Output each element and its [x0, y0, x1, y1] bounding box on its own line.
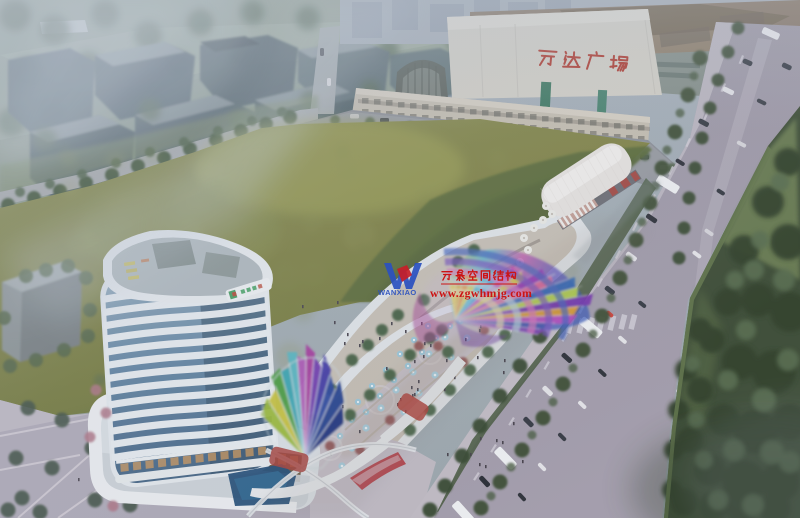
svg-text:WANXIAO: WANXIAO	[378, 288, 417, 297]
svg-text:www.zgwhmjg.com: www.zgwhmjg.com	[430, 286, 532, 300]
